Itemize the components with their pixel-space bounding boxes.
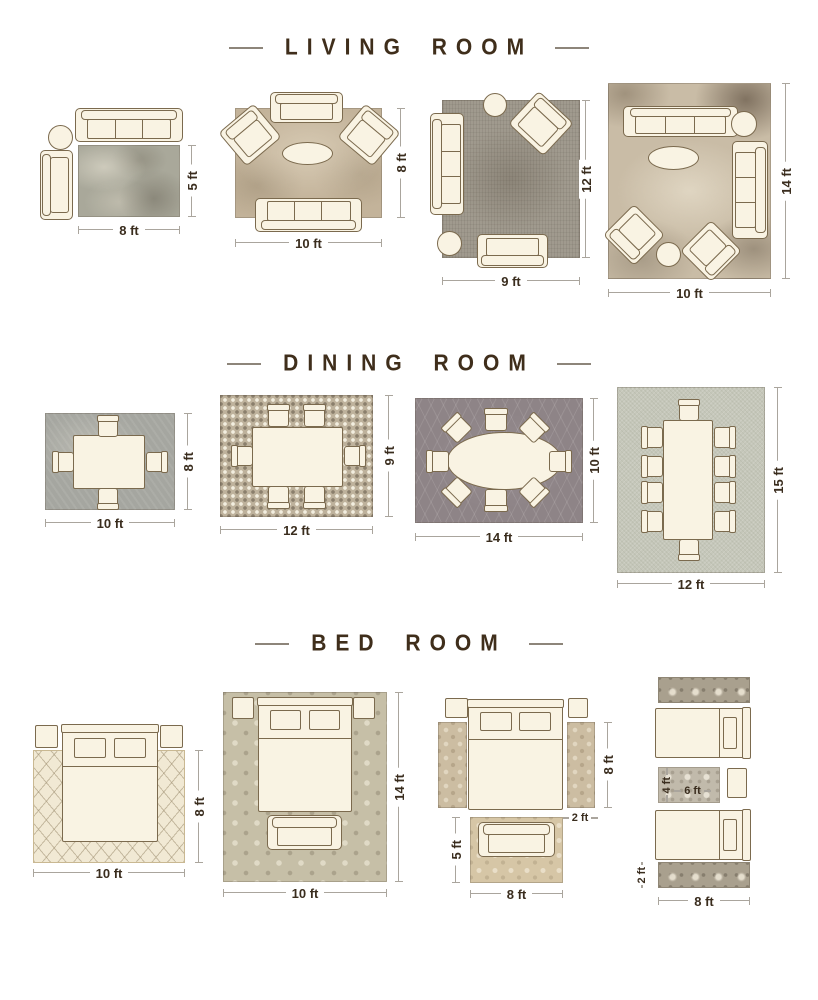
width-dimension: 10 ft [45, 516, 175, 530]
bed [258, 698, 352, 812]
bench [478, 822, 555, 857]
sofa-three-seat [255, 198, 362, 232]
dining-chair [644, 511, 663, 532]
width-dimension: 8 ft [658, 894, 750, 908]
height-dimension: 15 ft [770, 387, 786, 573]
sofa-three-seat-vertical [430, 113, 464, 215]
runner-rug [658, 677, 750, 703]
bed-layout-4: 4 ft 6 ft 2 ft 8 ft [625, 670, 818, 910]
width-label: 8 ft [501, 887, 533, 902]
nightstand [568, 698, 588, 718]
headboard [742, 809, 751, 861]
headboard [257, 697, 353, 706]
width-label: 8 ft [113, 223, 145, 238]
dining-chair [344, 446, 363, 466]
height-dimension: 8 ft [191, 750, 207, 863]
dining-table-oval [447, 432, 562, 490]
dining-chair [485, 489, 507, 509]
width-label: 10 ft [289, 236, 328, 251]
bed-seam [719, 811, 720, 859]
height-label: 8 ft [394, 147, 409, 179]
width-dimension: 12 ft [220, 523, 373, 537]
rug-size-guide: LIVING ROOM 8 ft 5 ft 10 ft 8 ft [0, 0, 818, 1000]
twin-bed [655, 708, 750, 758]
headboard [61, 724, 159, 733]
title-dash [529, 643, 563, 645]
dining-chair [714, 482, 733, 503]
width-dimension: 10 ft [223, 886, 387, 900]
width-dimension: 10 ft [33, 866, 185, 880]
dining-chair [268, 486, 289, 506]
width-label: 10 ft [670, 286, 709, 301]
runner-height-label: 8 ft [601, 749, 616, 781]
width-label: 10 ft [90, 866, 129, 881]
area-rug [78, 145, 180, 217]
side-table-round [656, 242, 681, 267]
height-dimension: 9 ft [381, 395, 397, 517]
nightstand [727, 768, 747, 798]
height-label: 9 ft [382, 440, 397, 472]
sofa-three-seat [75, 108, 183, 142]
dining-chair [644, 482, 663, 503]
nightstand [353, 697, 375, 719]
dining-chair [146, 452, 165, 472]
bed-layout-1: 10 ft 8 ft [15, 690, 215, 890]
width-label: 10 ft [91, 516, 130, 531]
height-label: 8 ft [181, 446, 196, 478]
section-heading-living: LIVING ROOM [285, 35, 533, 62]
dining-chair [714, 511, 733, 532]
living-layout-1: 8 ft 5 ft [20, 88, 215, 248]
width-label: 10 ft [286, 886, 325, 901]
coffee-table-oval [648, 146, 699, 170]
height-label: 15 ft [771, 461, 786, 500]
bed [468, 700, 563, 810]
sofa-three-seat-vertical [732, 141, 768, 239]
bench [267, 815, 342, 850]
title-dash [227, 363, 261, 365]
title-dash [255, 643, 289, 645]
height-dimension: 10 ft [586, 398, 602, 523]
dining-table [73, 435, 145, 489]
side-table-round [437, 231, 462, 256]
runner-rug [438, 722, 467, 808]
dining-chair [98, 488, 118, 507]
height-label: 12 ft [579, 160, 594, 199]
twin-bed [655, 810, 750, 860]
bed-layout-3: 8 ft 2 ft 5 ft 8 ft [425, 690, 620, 905]
foot-rug-height-dimension: 5 ft [448, 817, 464, 883]
between-rug-width-dimension: 6 ft [665, 784, 720, 798]
loveseat [270, 92, 343, 123]
runner-height-dimension: 8 ft [600, 722, 616, 808]
runner-rug [567, 722, 595, 808]
dining-layout-1: 10 ft 8 ft [30, 400, 210, 540]
runner-rug [658, 862, 750, 888]
dining-chair [714, 427, 733, 448]
width-dimension: 12 ft [617, 577, 765, 591]
width-dimension: 8 ft [78, 223, 180, 237]
living-layout-4: 10 ft 14 ft [605, 80, 818, 315]
height-dimension: 5 ft [184, 145, 200, 217]
dining-chair [549, 451, 569, 472]
width-label: 12 ft [277, 523, 316, 538]
section-heading-bed: BED ROOM [311, 631, 507, 658]
dining-chair [679, 402, 699, 421]
title-dash [557, 363, 591, 365]
height-dimension: 12 ft [578, 100, 594, 258]
width-label: 8 ft [688, 894, 720, 909]
dining-table [663, 420, 713, 540]
nightstand [35, 725, 58, 748]
dining-layout-3: 14 ft 10 ft [410, 385, 605, 555]
between-rug-width-label: 6 ft [681, 784, 704, 798]
runner-height-dimension: 2 ft [634, 862, 650, 888]
runner-height-label: 2 ft [636, 865, 648, 886]
side-table-round [48, 125, 73, 150]
headboard [742, 707, 751, 759]
dining-chair [429, 451, 449, 472]
dining-table [252, 427, 343, 487]
width-dimension: 10 ft [608, 286, 771, 300]
title-dash [555, 47, 589, 49]
height-label: 5 ft [185, 165, 200, 197]
sofa-three-seat [623, 106, 738, 137]
dining-chair [485, 411, 507, 431]
height-dimension: 8 ft [180, 413, 196, 510]
dining-chair [268, 407, 289, 427]
width-dimension: 8 ft [470, 887, 563, 901]
dining-chair [98, 418, 118, 437]
living-layout-2: 10 ft 8 ft [215, 85, 420, 260]
dining-chair [644, 456, 663, 477]
width-dimension: 10 ft [235, 236, 382, 250]
dining-chair [55, 452, 74, 472]
bed-layout-2: 10 ft 14 ft [215, 680, 420, 910]
living-layout-3: 9 ft 12 ft [425, 85, 605, 300]
bed [62, 725, 158, 842]
height-dimension: 14 ft [778, 83, 794, 279]
armchair [40, 150, 73, 220]
section-title-living: LIVING ROOM [0, 36, 818, 60]
nightstand [232, 697, 254, 719]
headboard [467, 699, 564, 708]
height-label: 10 ft [587, 441, 602, 480]
width-label: 14 ft [480, 530, 519, 545]
nightstand [160, 725, 183, 748]
dining-chair [644, 427, 663, 448]
coffee-table-oval [282, 142, 333, 165]
side-table-round [731, 111, 757, 137]
bed-seam [63, 766, 157, 767]
section-title-bed: BED ROOM [0, 632, 818, 656]
dining-chair [234, 446, 253, 466]
height-dimension: 14 ft [391, 692, 407, 882]
runner-width-label: 2 ft [569, 811, 592, 825]
dining-chair [304, 407, 325, 427]
bed-seam [719, 709, 720, 757]
dining-chair [304, 486, 325, 506]
height-dimension: 8 ft [393, 108, 409, 218]
dining-chair [679, 539, 699, 558]
title-dash [229, 47, 263, 49]
height-label: 8 ft [192, 791, 207, 823]
section-title-dining: DINING ROOM [0, 352, 818, 376]
bed-seam [469, 739, 562, 740]
side-table-round [483, 93, 507, 117]
bed-seam [259, 738, 351, 739]
height-label: 14 ft [779, 162, 794, 201]
width-label: 9 ft [495, 274, 527, 289]
loveseat [477, 234, 548, 268]
height-label: 14 ft [392, 768, 407, 807]
dining-layout-2: 12 ft 9 ft [215, 385, 405, 545]
width-dimension: 14 ft [415, 530, 583, 544]
nightstand [445, 698, 468, 718]
section-heading-dining: DINING ROOM [283, 351, 535, 378]
width-label: 12 ft [672, 577, 711, 592]
foot-rug-height-label: 5 ft [449, 834, 464, 866]
dining-layout-4: 12 ft 15 ft [615, 385, 805, 605]
width-dimension: 9 ft [442, 274, 580, 288]
dining-chair [714, 456, 733, 477]
